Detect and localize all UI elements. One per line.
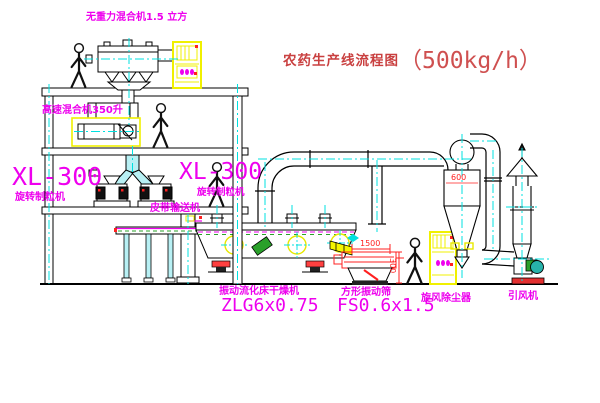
title-text: 农药生产线流程图 (283, 53, 399, 69)
dryer-foot-base (216, 267, 226, 272)
floor-slab-2 (42, 148, 248, 155)
title-capacity: （500kg/h） (399, 48, 542, 74)
person-icon (154, 104, 168, 147)
label-belt-conveyor: 皮带输送机 (150, 204, 200, 214)
dimension-screen-length: 1500 (360, 240, 380, 248)
dimension-cyclone-diameter: 600 (451, 174, 466, 182)
control-cabinet-top (173, 42, 201, 88)
indicator-lights (436, 260, 450, 266)
person-icon (407, 238, 421, 282)
page-title: 农药生产线流程图（500kg/h） (283, 50, 542, 73)
fan-base (512, 278, 544, 284)
label-cyclone: 旋风除尘器 (421, 294, 471, 304)
exhaust-duct (255, 150, 448, 224)
feed-duct (122, 90, 134, 104)
dryer-foot (212, 261, 230, 267)
roof-slab (42, 88, 248, 96)
label-granulator-left-model: XL-300 (12, 164, 102, 189)
cad-flow-diagram: 无重力混合机1.5 立方 农药生产线流程图（500kg/h） 高速混合机350升… (0, 0, 600, 403)
label-screen-model: FS0.6x1.5 (337, 297, 435, 315)
label-fan: 引风机 (508, 292, 538, 302)
label-granulator-left-name: 旋转制粒机 (15, 193, 65, 203)
indicator-lights (180, 69, 194, 75)
label-gravity-free-mixer: 无重力混合机1.5 立方 (86, 13, 187, 23)
induced-draft-fan (512, 258, 544, 284)
label-dryer-model: ZLG6x0.75 (221, 297, 319, 315)
label-granulator-right-name: 旋转制粒机 (197, 188, 245, 198)
person-icon (72, 44, 86, 87)
label-high-speed-mixer: 高速混合机350升 (42, 106, 123, 116)
control-cabinet-ground (430, 232, 456, 284)
dryer-foot (306, 261, 324, 267)
label-granulator-right-model: XL-300 (179, 161, 262, 184)
dryer-foot-base (310, 267, 320, 272)
dimension-screen-height: 300 (388, 258, 396, 273)
